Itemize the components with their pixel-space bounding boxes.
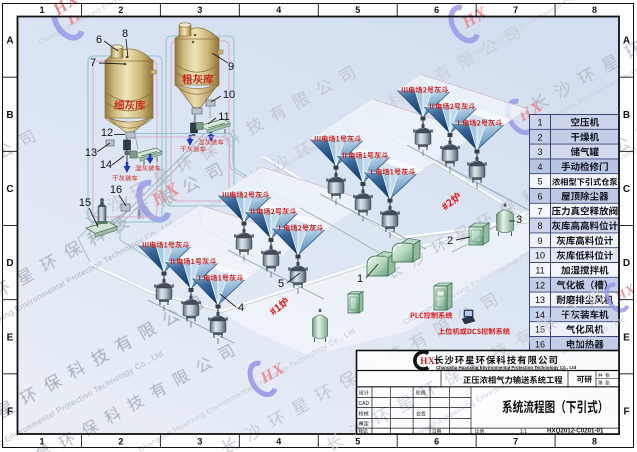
svg-text:4: 4 bbox=[238, 302, 244, 314]
svg-text:10: 10 bbox=[535, 251, 545, 261]
svg-text:B: B bbox=[6, 110, 13, 121]
svg-text:10: 10 bbox=[223, 89, 235, 101]
svg-text:C: C bbox=[623, 184, 630, 195]
svg-text:HX: HX bbox=[420, 357, 435, 367]
svg-text:2: 2 bbox=[118, 437, 123, 447]
svg-text:5: 5 bbox=[278, 278, 284, 290]
svg-text:8: 8 bbox=[537, 221, 542, 231]
svg-text:6: 6 bbox=[434, 5, 439, 15]
svg-text:8: 8 bbox=[592, 437, 597, 447]
svg-text:3: 3 bbox=[197, 437, 202, 447]
svg-text:3: 3 bbox=[537, 147, 542, 157]
svg-text:Changsha Huanxing Environmenta: Changsha Huanxing Environmental Protecti… bbox=[436, 365, 577, 370]
svg-text:8: 8 bbox=[122, 28, 128, 40]
svg-text:6: 6 bbox=[96, 34, 102, 46]
svg-text:2: 2 bbox=[447, 235, 453, 247]
svg-text:2: 2 bbox=[537, 132, 542, 142]
svg-text:13: 13 bbox=[85, 147, 97, 159]
svg-text:9: 9 bbox=[537, 236, 542, 246]
svg-text:12: 12 bbox=[535, 280, 545, 290]
svg-text:5: 5 bbox=[537, 177, 542, 187]
svg-text:7: 7 bbox=[90, 57, 96, 69]
svg-text:1:1: 1:1 bbox=[520, 429, 527, 435]
svg-text:D: D bbox=[6, 258, 13, 269]
svg-text:7: 7 bbox=[513, 5, 518, 15]
svg-text:E: E bbox=[623, 332, 630, 343]
svg-text:1: 1 bbox=[39, 437, 44, 447]
svg-text:7: 7 bbox=[537, 206, 542, 216]
svg-text:A: A bbox=[6, 36, 13, 47]
svg-text:16: 16 bbox=[110, 184, 122, 196]
svg-text:C: C bbox=[6, 184, 13, 195]
svg-text:15: 15 bbox=[79, 197, 91, 209]
svg-text:11: 11 bbox=[218, 111, 229, 123]
svg-text:1: 1 bbox=[357, 273, 363, 285]
svg-text:11: 11 bbox=[535, 266, 544, 276]
svg-text:14: 14 bbox=[100, 159, 112, 171]
svg-text:2: 2 bbox=[118, 5, 123, 15]
svg-text:12: 12 bbox=[101, 127, 113, 139]
svg-text:3: 3 bbox=[516, 214, 522, 226]
svg-text:E: E bbox=[7, 332, 14, 343]
svg-text:3: 3 bbox=[197, 5, 202, 15]
svg-text:B: B bbox=[623, 110, 630, 121]
svg-text:8: 8 bbox=[592, 5, 597, 15]
svg-text:13: 13 bbox=[535, 295, 545, 305]
svg-text:CAD: CAD bbox=[359, 401, 370, 407]
svg-text:F: F bbox=[7, 406, 13, 417]
svg-text:D: D bbox=[623, 258, 630, 269]
svg-text:6: 6 bbox=[537, 192, 542, 202]
svg-text:4: 4 bbox=[537, 162, 542, 172]
svg-text:4: 4 bbox=[276, 437, 281, 447]
svg-text:6: 6 bbox=[434, 437, 439, 447]
svg-text:HXQ2012-C0201-01: HXQ2012-C0201-01 bbox=[547, 428, 604, 435]
svg-text:16: 16 bbox=[535, 340, 545, 350]
svg-text:A: A bbox=[623, 36, 630, 47]
svg-text:7: 7 bbox=[513, 437, 518, 447]
svg-text:9: 9 bbox=[228, 61, 234, 73]
svg-text:5: 5 bbox=[355, 5, 360, 15]
svg-text:F: F bbox=[623, 406, 629, 417]
svg-text:1: 1 bbox=[537, 118, 542, 128]
svg-text:4: 4 bbox=[276, 5, 281, 15]
svg-text:1: 1 bbox=[39, 5, 44, 15]
